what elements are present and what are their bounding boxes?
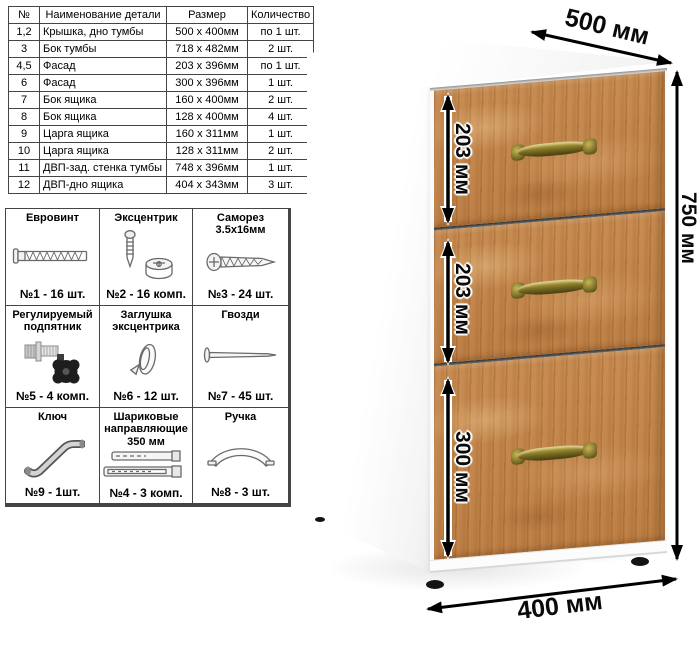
handle-bar — [517, 443, 591, 462]
handle-end — [583, 441, 597, 458]
part-size: 718 х 482мм — [167, 41, 248, 58]
part-name: Бок тумбы — [40, 41, 167, 58]
hardware-table: Евровинт №1 - 16 шт. Эксцентрик — [5, 208, 291, 507]
assembly-instruction-sheet: № Наименование детали Размер Количество … — [0, 0, 700, 648]
cabinet-foot — [315, 517, 325, 522]
part-qty: по 1 шт. — [248, 58, 314, 75]
part-size: 128 х 400мм — [167, 109, 248, 126]
table-row: 12 ДВП-дно ящика 404 х 343мм 3 шт. — [9, 177, 314, 194]
parts-table-header-row: № Наименование детали Размер Количество — [9, 7, 314, 24]
part-size: 203 х 396мм — [167, 58, 248, 75]
table-row: 3 Бок тумбы 718 х 482мм 2 шт. — [9, 41, 314, 58]
table-row: 7 Бок ящика 160 х 400мм 2 шт. — [9, 92, 314, 109]
part-number: 9 — [9, 126, 40, 143]
part-number: 12 — [9, 177, 40, 194]
hardware-count: №4 - 3 комп. — [109, 486, 182, 500]
part-name: Бок ящика — [40, 109, 167, 126]
hardware-title: Гвозди — [221, 309, 259, 321]
part-qty: 2 шт. — [248, 41, 314, 58]
col-header-quantity: Количество — [248, 7, 314, 24]
eccentric-cam-icon — [114, 224, 178, 287]
hex-key-icon — [21, 423, 85, 485]
part-number: 1,2 — [9, 24, 40, 41]
handle-bar — [517, 277, 591, 296]
handle-end — [583, 275, 597, 292]
hardware-cell-ball-slides: Шариковые направляющие 350 мм №4 - 3 ком… — [100, 408, 192, 503]
part-qty: 4 шт. — [248, 109, 314, 126]
part-qty: 1 шт. — [248, 160, 314, 177]
hardware-count: №6 - 12 шт. — [113, 389, 179, 403]
hardware-title: Шариковые направляющие 350 мм — [102, 411, 190, 448]
hardware-title: Ручка — [225, 411, 256, 423]
part-qty: 1 шт. — [248, 126, 314, 143]
self-tapping-screw-icon — [204, 237, 278, 287]
drawer-top-dimension-label: 203 мм — [450, 113, 474, 205]
bow-handle-icon — [205, 423, 277, 485]
part-number: 4,5 — [9, 58, 40, 75]
part-qty: 3 шт. — [248, 177, 314, 194]
hardware-title: Евровинт — [26, 212, 79, 224]
cam-cap-icon — [124, 334, 168, 389]
part-size: 404 х 343мм — [167, 177, 248, 194]
cabinet-foot — [631, 557, 649, 566]
handle-end — [583, 137, 597, 154]
part-name: Фасад — [40, 58, 167, 75]
hardware-cell-nails: Гвозди №7 - 45 шт. — [193, 306, 288, 407]
cabinet-side-panel — [307, 53, 430, 573]
part-qty: 1 шт. — [248, 75, 314, 92]
hardware-cell-cam-cap: Заглушка эксцентрика №6 - 12 шт. — [100, 306, 192, 407]
part-qty: 2 шт. — [248, 92, 314, 109]
parts-table: № Наименование детали Размер Количество … — [8, 6, 314, 194]
part-size: 500 х 400мм — [167, 24, 248, 41]
part-name: Царга ящика — [40, 143, 167, 160]
table-row: 1,2 Крышка, дно тумбы 500 х 400мм по 1 ш… — [9, 24, 314, 41]
part-size: 748 х 396мм — [167, 160, 248, 177]
part-name: Бок ящика — [40, 92, 167, 109]
col-header-name: Наименование детали — [40, 7, 167, 24]
table-row: 6 Фасад 300 х 396мм 1 шт. — [9, 75, 314, 92]
adjustable-foot-icon — [22, 334, 84, 389]
part-number: 11 — [9, 160, 40, 177]
part-name: Крышка, дно тумбы — [40, 24, 167, 41]
part-number: 3 — [9, 41, 40, 58]
part-size: 160 х 400мм — [167, 92, 248, 109]
part-qty: 2 шт. — [248, 143, 314, 160]
hardware-title: Регулируемый подпятник — [8, 309, 97, 334]
table-row: 11 ДВП-зад. стенка тумбы 748 х 396мм 1 ш… — [9, 160, 314, 177]
hardware-cell-handle: Ручка №8 - 3 шт. — [193, 408, 288, 503]
nail-icon — [202, 321, 280, 389]
part-name: ДВП-дно ящика — [40, 177, 167, 194]
table-row: 8 Бок ящика 128 х 400мм 4 шт. — [9, 109, 314, 126]
part-number: 7 — [9, 92, 40, 109]
hardware-title: Саморез 3.5х16мм — [195, 212, 286, 237]
height-dimension-label: 750 мм — [676, 182, 700, 274]
table-row: 9 Царга ящика 160 х 311мм 1 шт. — [9, 126, 314, 143]
hardware-title: Заглушка эксцентрика — [102, 309, 190, 334]
part-number: 8 — [9, 109, 40, 126]
hardware-cell-eccentric: Эксцентрик №2 - 16 комп. — [100, 209, 192, 305]
ball-bearing-slides-icon — [102, 448, 190, 486]
hardware-cell-self-tapping-screw: Саморез 3.5х16мм №3 - 24 шт. — [193, 209, 288, 305]
handle-bar — [517, 139, 591, 158]
col-header-size: Размер — [167, 7, 248, 24]
part-number: 10 — [9, 143, 40, 160]
drawer-handle — [511, 439, 597, 466]
hardware-cell-adjustable-foot: Регулируемый подпятник — [6, 306, 99, 407]
hardware-cell-key: Ключ №9 - 1шт. — [6, 408, 99, 503]
part-name: Фасад — [40, 75, 167, 92]
hardware-count: №1 - 16 шт. — [20, 287, 86, 301]
part-size: 300 х 396мм — [167, 75, 248, 92]
drawer-handle — [511, 273, 597, 300]
hardware-cell-euro-screw: Евровинт №1 - 16 шт. — [6, 209, 99, 305]
table-row: 4,5 Фасад 203 х 396мм по 1 шт. — [9, 58, 314, 75]
hardware-count: №5 - 4 комп. — [16, 389, 89, 403]
hardware-count: №2 - 16 комп. — [106, 287, 186, 301]
hardware-count: №9 - 1шт. — [25, 485, 81, 499]
hardware-count: №7 - 45 шт. — [208, 389, 274, 403]
col-header-number: № — [9, 7, 40, 24]
hardware-count: №8 - 3 шт. — [211, 485, 270, 499]
hardware-title: Ключ — [38, 411, 67, 423]
part-qty: по 1 шт. — [248, 24, 314, 41]
part-name: Царга ящика — [40, 126, 167, 143]
part-name: ДВП-зад. стенка тумбы — [40, 160, 167, 177]
height-dimension-arrow — [666, 62, 688, 568]
drawer-middle-dimension-label: 203 мм — [450, 253, 474, 345]
part-size: 160 х 311мм — [167, 126, 248, 143]
drawer-bottom-dimension-label: 300 мм — [450, 421, 474, 513]
hardware-count: №3 - 24 шт. — [208, 287, 274, 301]
table-row: 10 Царга ящика 128 х 311мм 2 шт. — [9, 143, 314, 160]
part-size: 128 х 311мм — [167, 143, 248, 160]
euro-screw-icon — [11, 224, 95, 287]
hardware-title: Эксцентрик — [114, 212, 177, 224]
part-number: 6 — [9, 75, 40, 92]
drawer-handle — [511, 135, 597, 162]
